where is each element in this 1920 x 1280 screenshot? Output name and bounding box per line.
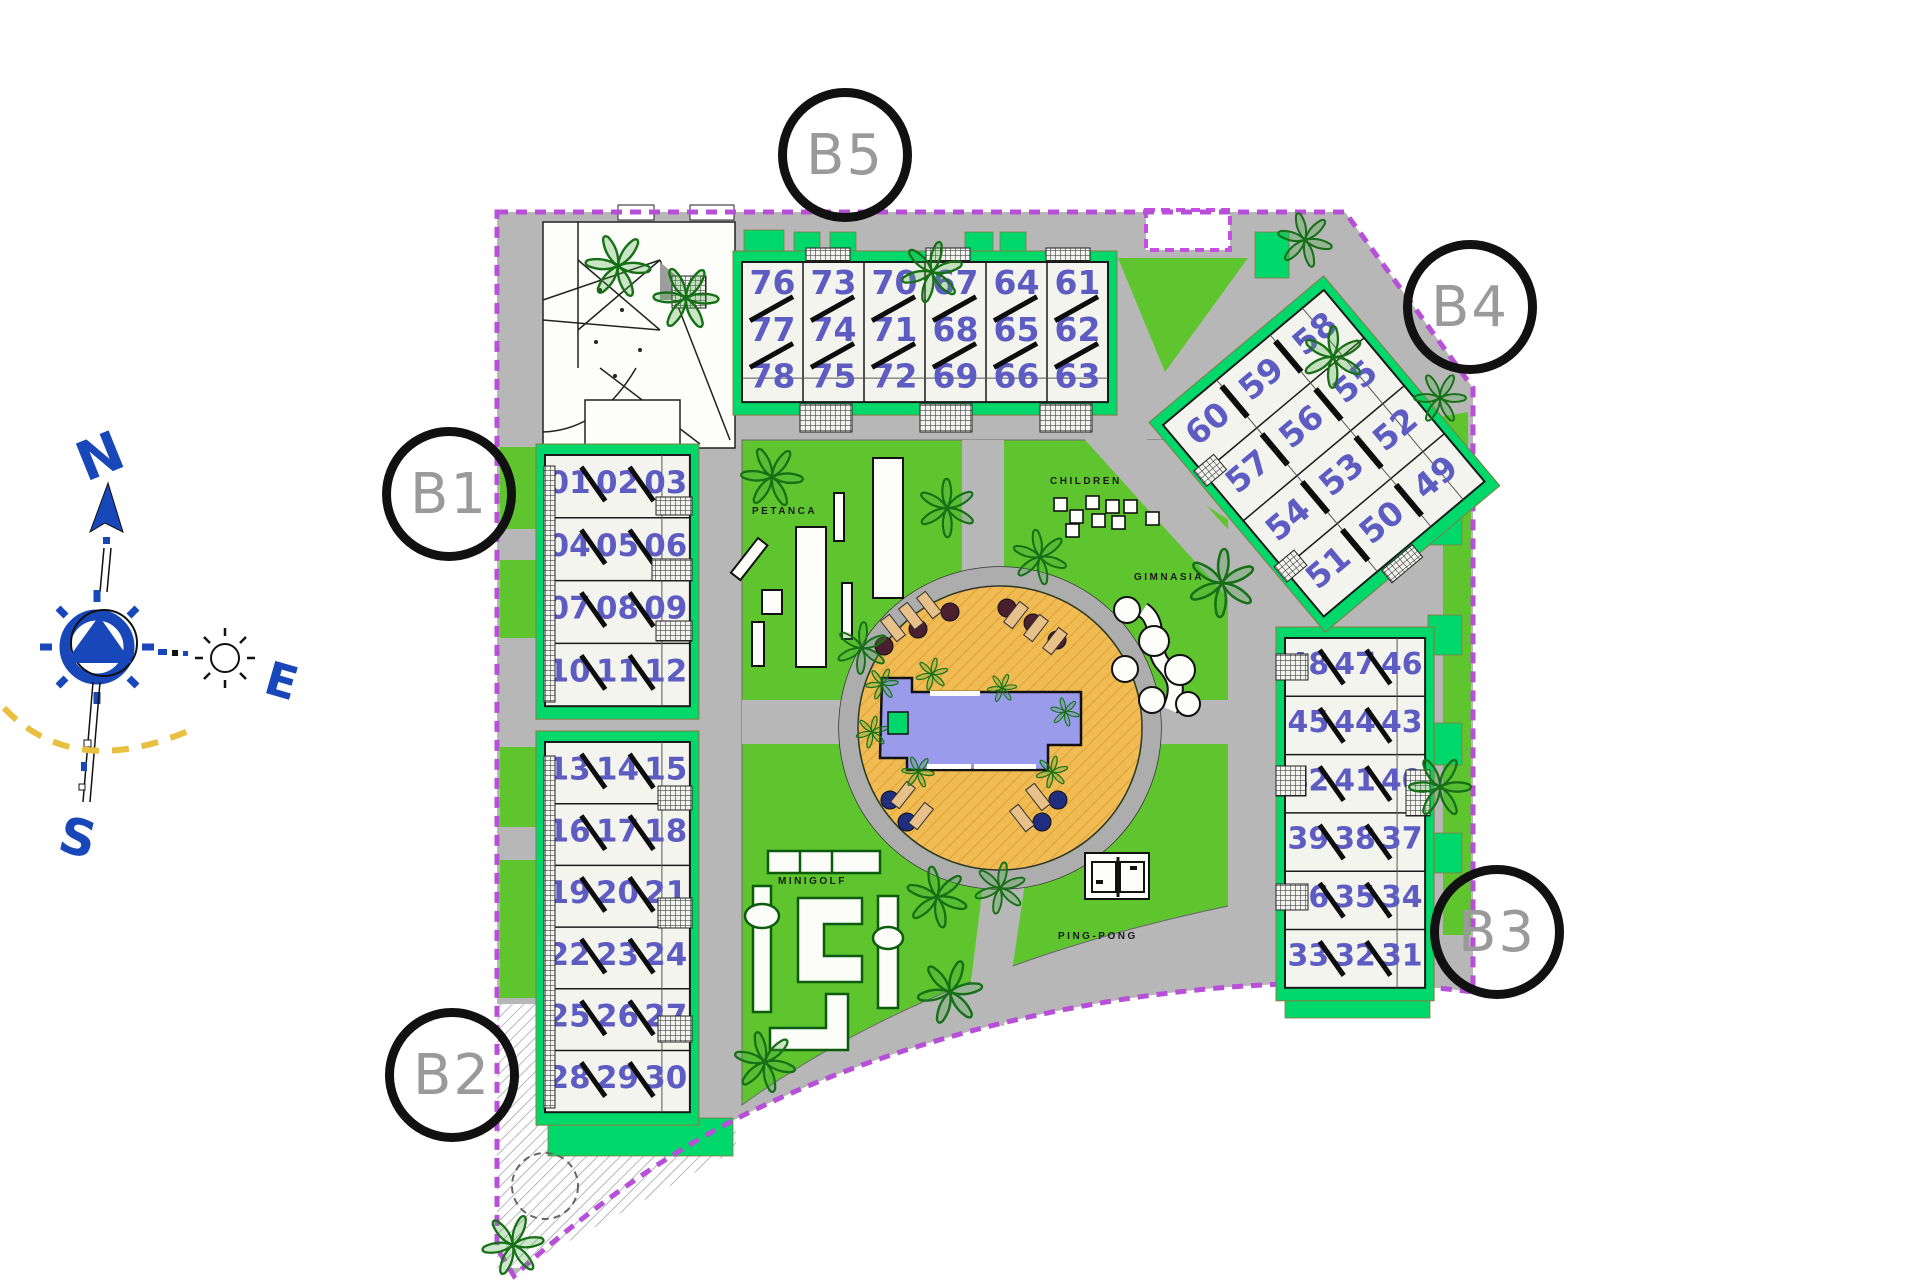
site-plan-drawing: 7673706764617774716865627875726966630102… <box>0 0 1920 1280</box>
unit-number: 61 <box>1055 263 1101 302</box>
sun-icon <box>195 628 255 688</box>
block-label-b4: B4 <box>1403 240 1537 374</box>
umbrella-icon <box>941 603 959 621</box>
site-plan-canvas: 7673706764617774716865627875726966630102… <box>0 0 1920 1280</box>
unit-number: 64 <box>994 263 1040 302</box>
block-label-b2: B2 <box>385 1008 519 1142</box>
gimnasia-label: GIMNASIA <box>1134 572 1204 583</box>
compass-east-label: E <box>259 651 304 712</box>
block-label-b5: B5 <box>778 88 912 222</box>
unit-number: 73 <box>811 263 857 302</box>
petanca-label: PETANCA <box>752 506 817 517</box>
children-label: CHILDREN <box>1050 476 1122 487</box>
compass-south-label: S <box>53 805 102 870</box>
minigolf-label: MINIGOLF <box>778 876 847 887</box>
umbrella-icon <box>1033 813 1051 831</box>
unit-number: 76 <box>750 263 796 302</box>
sun-path-arc <box>4 708 195 751</box>
ping-pong-table-icon <box>1085 853 1149 899</box>
block-label-b3: B3 <box>1430 865 1564 999</box>
compass-north-label: N <box>67 419 133 494</box>
block-label-b1: B1 <box>382 427 516 561</box>
parking-ramp-structure <box>543 222 735 448</box>
umbrella-icon <box>1049 791 1067 809</box>
pingpong-label: PING-PONG <box>1058 931 1138 942</box>
entrance-gate <box>1146 210 1230 250</box>
building-block-B1: 010203040506070809101112 <box>536 444 699 719</box>
compass-rose-icon: N E S <box>4 419 304 871</box>
